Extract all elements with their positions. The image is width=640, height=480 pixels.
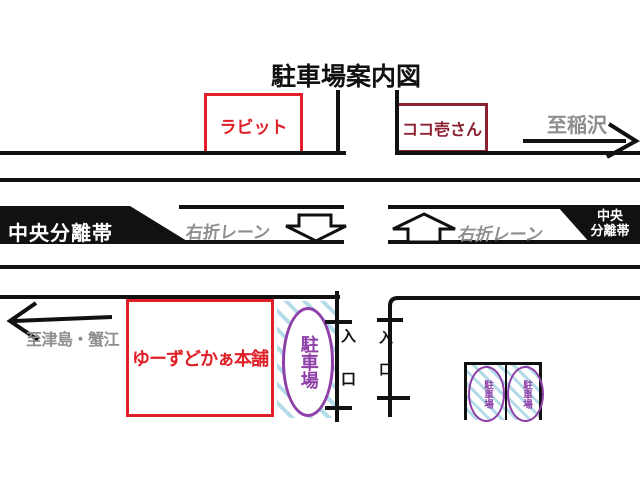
turn-lane-right-label: 右折レーン bbox=[456, 220, 546, 245]
median-right-label-line2: 分離帯 bbox=[584, 224, 636, 239]
direction-west-label: 至津島・蟹江 bbox=[26, 326, 119, 350]
entrance-left-label: 入口 bbox=[338, 328, 359, 414]
turn-up-arrow-icon bbox=[393, 214, 455, 242]
entrance-right-label: 入口 bbox=[375, 330, 395, 394]
direction-east-label: 至稲沢 bbox=[547, 109, 607, 138]
page-title: 駐車場案内図 bbox=[271, 57, 421, 93]
parking-guide-map: 駐車場案内図 ラビット ココ壱さん ゆーずどかぁ本舗 駐車場 駐車場 駐車場 中… bbox=[0, 0, 640, 480]
turn-down-arrow-icon bbox=[286, 215, 346, 241]
median-right-label-line1: 中央 bbox=[584, 209, 636, 224]
median-right-label: 中央 分離帯 bbox=[584, 209, 636, 239]
turn-lane-left-label: 右折レーン bbox=[185, 218, 272, 243]
median-left-label: 中央分離帯 bbox=[8, 217, 113, 246]
